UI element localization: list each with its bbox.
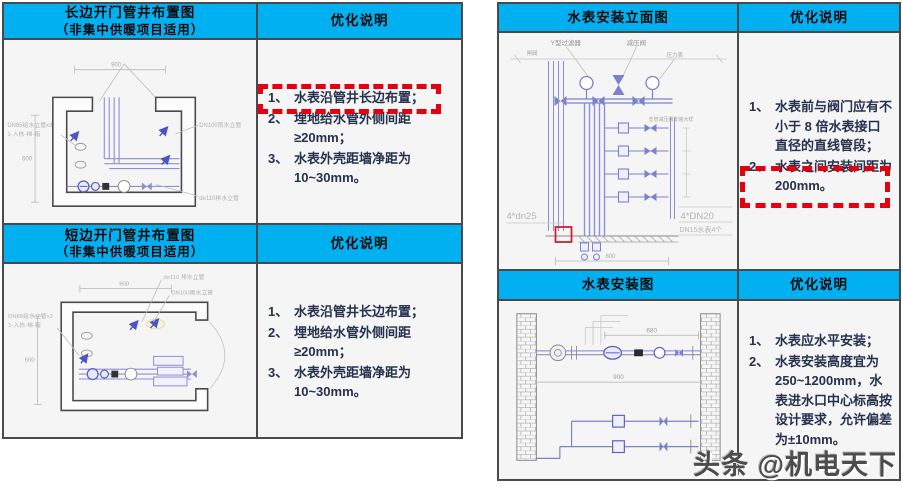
manifold-pipe bbox=[564, 99, 673, 103]
prv-symbol bbox=[613, 75, 625, 95]
meter-box-symbol bbox=[613, 415, 625, 427]
header-long-side-plan: 长边开门管井布置图 （非集中供暖项目适用） bbox=[4, 4, 258, 38]
header-subtitle: （非集中供暖项目适用） bbox=[56, 244, 205, 260]
header-optimization-notes: 优化说明 bbox=[739, 4, 899, 31]
note-number: 1、 bbox=[268, 88, 294, 108]
note-item: 1、 水表沿管井长边布置； bbox=[268, 88, 454, 108]
note-text: 水表外壳距墙净距为 10~30mm。 bbox=[294, 363, 454, 402]
dim-left-label: 600 bbox=[24, 357, 35, 363]
header-short-side-plan: 短边开门管井布置图 （非集中供暖项目适用） bbox=[4, 225, 258, 262]
meter-dial-symbol bbox=[118, 180, 130, 192]
fitting-symbol bbox=[102, 183, 109, 190]
left-header-row-1: 长边开门管井布置图 （非集中供暖项目适用） 优化说明 bbox=[4, 4, 461, 40]
note-number: 2、 bbox=[268, 323, 294, 362]
header-subtitle: （非集中供暖项目适用） bbox=[56, 22, 205, 38]
label-rain-riser: DN100雨水立管 bbox=[199, 121, 241, 129]
watermark: 头条 @机电天下 bbox=[693, 443, 897, 482]
meter-manifold-detail bbox=[153, 356, 186, 385]
brick-wall-left bbox=[517, 314, 537, 461]
note-number: 3、 bbox=[268, 149, 294, 188]
note-item: 2、 水表安装高度宜为 250~1200mm，水表进水口中心标高按设计要求，允许… bbox=[749, 352, 892, 450]
header-title: 长边开门管井布置图 bbox=[65, 4, 196, 22]
note-text: 水表安装高度宜为 250~1200mm，水表进水口中心标高按设计要求，允许偏差为… bbox=[775, 352, 892, 450]
valve-bowtie bbox=[187, 370, 197, 378]
right-header-row-2: 水表安装图 优化说明 bbox=[499, 271, 899, 301]
fitting-symbol bbox=[634, 349, 643, 356]
header-title: 优化说明 bbox=[331, 12, 389, 30]
label-supply-riser: DN65给水立管x3 bbox=[7, 121, 53, 129]
note-number: 3、 bbox=[268, 363, 294, 402]
left-header-row-2: 短边开门管井布置图 （非集中供暖项目适用） 优化说明 bbox=[4, 225, 461, 264]
notes-cell-short-side: 1、 水表沿管井长边布置； 2、 埋地给水管外侧间距≥20mm； 3、 水表外壳… bbox=[258, 264, 461, 437]
left-content-row-1: 900 bbox=[4, 40, 461, 225]
note-text: 水表应水平安装； bbox=[775, 331, 892, 351]
header-title: 优化说明 bbox=[790, 276, 848, 294]
note-item: 1、 水表应水平安装； bbox=[749, 331, 892, 351]
header-title: 优化说明 bbox=[790, 9, 848, 27]
header-meter-installation: 水表安装图 bbox=[499, 271, 739, 299]
left-table: 长边开门管井布置图 （非集中供暖项目适用） 优化说明 900 bbox=[2, 2, 463, 439]
note-text: 水表之间安装间距为 200mm。 bbox=[775, 157, 892, 196]
pressure-gauge-symbol bbox=[646, 77, 659, 90]
note-item: 2、 埋地给水管外侧间距≥20mm； bbox=[268, 109, 454, 148]
valve-bowtie bbox=[675, 349, 683, 357]
label-dn15-meters: DN15水表4个 bbox=[680, 225, 723, 234]
right-content-row-1: Y型过滤器 减压阀 闸阀 压力表 bbox=[499, 33, 899, 271]
valve-symbol bbox=[91, 182, 99, 190]
notes-cell-elevation: 1、 水表前与阀门应有不小于 8 倍水表接口直径的直线管段； 2、 水表之间安装… bbox=[739, 33, 899, 269]
long-side-plan-diagram: 900 bbox=[5, 40, 256, 223]
dim-bottom-label: 800 bbox=[605, 254, 616, 260]
label-supply-riser: DN65给水立管x2 bbox=[8, 312, 53, 320]
label-pipes-dn25: 4*dn25 bbox=[507, 211, 537, 222]
valve-symbol bbox=[654, 347, 665, 358]
brick-wall-right bbox=[701, 314, 721, 461]
floor-hatch bbox=[579, 236, 679, 242]
header-title: 优化说明 bbox=[331, 235, 389, 253]
note-item: 1、 水表前与阀门应有不小于 8 倍水表接口直径的直线管段； bbox=[749, 97, 892, 156]
header-optimization-notes: 优化说明 bbox=[258, 225, 461, 262]
note-number: 1、 bbox=[268, 302, 294, 322]
header-optimization-notes: 优化说明 bbox=[258, 4, 461, 38]
flow-arrow bbox=[159, 128, 166, 136]
valve-bowtie bbox=[633, 96, 645, 106]
valve-symbol bbox=[100, 370, 108, 378]
pressure-gauge-symbol bbox=[580, 77, 593, 90]
note-number: 2、 bbox=[268, 109, 294, 148]
diagram-cell-meter-elevation: Y型过滤器 减压阀 闸阀 压力表 bbox=[499, 33, 739, 269]
dim-900-label: 900 bbox=[613, 374, 624, 381]
label-supply-riser-2: 1-入栋-梯-箱 bbox=[7, 130, 40, 138]
note-number: 2、 bbox=[749, 157, 775, 196]
label-drain-riser: de110排水立管 bbox=[199, 194, 239, 202]
meter-branches bbox=[605, 123, 669, 202]
dim-680-label: 680 bbox=[646, 327, 657, 334]
meter-elevation-diagram: Y型过滤器 减压阀 闸阀 压力表 bbox=[500, 33, 736, 269]
label-supply-riser-2: 1-入栋-梯-箱 bbox=[8, 321, 41, 329]
left-content-row-2: 900 bbox=[4, 264, 461, 437]
water-meter-symbol bbox=[87, 369, 98, 380]
notes-cell-long-side: 1、 水表沿管井长边布置； 2、 埋地给水管外侧间距≥20mm； 3、 水表外壳… bbox=[258, 40, 461, 223]
gauge-symbol bbox=[550, 345, 566, 361]
note-text: 埋地给水管外侧间距≥20mm； bbox=[294, 109, 454, 148]
diagram-cell-long-side-plan: 900 bbox=[4, 40, 258, 223]
note-item: 2、 水表之间安装间距为 200mm。 bbox=[749, 157, 892, 196]
label-drain-riser: de110 排水立管 bbox=[163, 273, 204, 281]
note-text: 水表沿管井长边布置； bbox=[294, 88, 454, 108]
center-riser-bundle bbox=[585, 103, 605, 236]
dim-top-label: 900 bbox=[119, 282, 130, 288]
label-y-strainer: Y型过滤器 bbox=[551, 38, 582, 47]
dim-top-label: 900 bbox=[111, 63, 122, 69]
below-floor-fittings bbox=[581, 243, 601, 260]
note-text: 水表前与阀门应有不小于 8 倍水表接口直径的直线管段； bbox=[775, 97, 892, 156]
label-branch-prv-detail: 支管减压阀安装大样 bbox=[649, 116, 694, 123]
note-item: 3、 水表外壳距墙净距为 10~30mm。 bbox=[268, 363, 454, 402]
note-item: 1、 水表沿管井长边布置； bbox=[268, 302, 454, 322]
valve-bowtie bbox=[555, 96, 567, 106]
note-text: 水表沿管井长边布置； bbox=[294, 302, 454, 322]
fitting-symbol bbox=[111, 371, 118, 378]
flow-arrow bbox=[130, 322, 137, 330]
meter-dial-symbol bbox=[125, 368, 137, 380]
right-header-row-1: 水表安装立面图 优化说明 bbox=[499, 4, 899, 33]
note-number: 1、 bbox=[749, 97, 775, 156]
leader-lines bbox=[585, 316, 628, 345]
right-table: 水表安装立面图 优化说明 Y型过滤器 减压阀 闸阀 压力表 bbox=[497, 2, 901, 481]
valve-bowtie bbox=[141, 182, 151, 190]
note-number: 1、 bbox=[749, 331, 775, 351]
label-prv: 减压阀 bbox=[627, 38, 647, 47]
header-optimization-notes: 优化说明 bbox=[739, 271, 899, 299]
note-text: 埋地给水管外侧间距≥20mm； bbox=[294, 323, 454, 362]
diagram-cell-short-side-plan: 900 bbox=[4, 264, 258, 437]
label-gate-valve: 闸阀 bbox=[527, 49, 538, 57]
dim-left-label: 600 bbox=[22, 157, 33, 163]
header-title: 短边开门管井布置图 bbox=[65, 227, 196, 245]
short-side-plan-diagram: 900 bbox=[5, 265, 256, 436]
label-pressure-gauge: 压力表 bbox=[667, 51, 684, 59]
note-item: 3、 水表外壳距墙净距为 10~30mm。 bbox=[268, 149, 454, 188]
label-rain-riser: DN100雨水立管 bbox=[171, 288, 213, 296]
left-riser-bundle bbox=[549, 61, 564, 231]
meter-box-symbol bbox=[613, 441, 625, 453]
note-text: 水表外壳距墙净距为 10~30mm。 bbox=[294, 149, 454, 188]
header-meter-elevation: 水表安装立面图 bbox=[499, 4, 739, 31]
label-pipes-dn20: 4*DN20 bbox=[681, 211, 714, 222]
note-number: 2、 bbox=[749, 352, 775, 450]
flow-arrow bbox=[70, 133, 77, 141]
note-item: 2、 埋地给水管外侧间距≥20mm； bbox=[268, 323, 454, 362]
header-title: 水表安装立面图 bbox=[567, 9, 669, 27]
header-title: 水表安装图 bbox=[582, 276, 655, 294]
